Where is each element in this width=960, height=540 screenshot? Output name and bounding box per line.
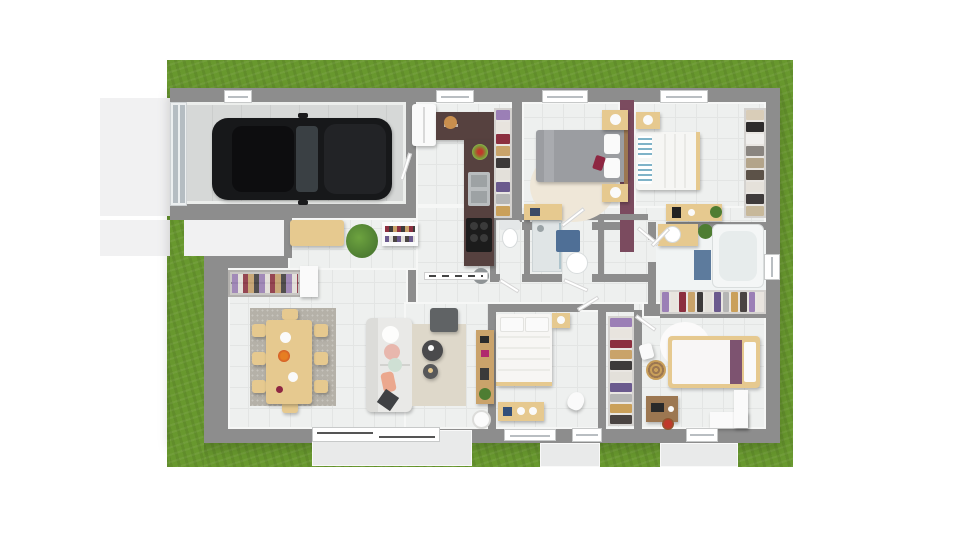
dining-chair-top bbox=[282, 309, 298, 320]
desk2-cup bbox=[688, 209, 695, 216]
bedroom3-laptop bbox=[651, 403, 664, 412]
kitchen-side-wardrobe bbox=[494, 108, 512, 218]
bed1-pillow-2 bbox=[604, 158, 620, 178]
burner-3 bbox=[470, 234, 478, 242]
clothes-item bbox=[610, 372, 632, 381]
desk4-radio bbox=[503, 407, 512, 416]
bed2-footboard bbox=[696, 132, 700, 190]
car-mirror-right bbox=[298, 200, 308, 205]
desk2-plant bbox=[710, 206, 722, 218]
nightstand2-cup bbox=[643, 115, 653, 125]
closet-cabinet bbox=[300, 266, 318, 297]
bathroom-window-line bbox=[771, 257, 773, 276]
coffee-cup bbox=[428, 345, 434, 351]
kitchen-sink bbox=[468, 172, 490, 206]
garage-sectional-door bbox=[170, 102, 187, 206]
bread-board bbox=[444, 116, 457, 129]
wall-shower-east bbox=[598, 218, 604, 276]
gray-ottoman bbox=[430, 308, 458, 332]
burner-4 bbox=[480, 234, 488, 242]
bedroom4-desk bbox=[498, 402, 544, 421]
shelf-unit bbox=[476, 330, 494, 404]
threshold-ticks bbox=[429, 275, 483, 277]
car-windshield bbox=[296, 126, 318, 192]
wall-kitchen-bedroom1 bbox=[512, 102, 522, 222]
car-hood bbox=[324, 124, 386, 194]
shoes-row bbox=[385, 226, 415, 232]
garage-door-panel-2 bbox=[180, 105, 185, 203]
kitchen-threshold bbox=[424, 272, 488, 280]
candle bbox=[428, 368, 433, 373]
shelf-item-dark bbox=[480, 336, 489, 343]
sink-basin-2 bbox=[471, 191, 487, 203]
wall-wcblock-south-b bbox=[522, 274, 562, 282]
clothes-item bbox=[746, 194, 764, 204]
bed4-duvet bbox=[498, 332, 550, 380]
bath-plant bbox=[698, 224, 713, 239]
bathroom-window bbox=[764, 254, 780, 280]
car-roof bbox=[232, 126, 294, 192]
bathtub-inner bbox=[719, 231, 757, 281]
clothes-item bbox=[731, 292, 738, 312]
desk4-jar-1 bbox=[517, 407, 525, 415]
burner-2 bbox=[480, 222, 488, 230]
wall-bedroom4-east bbox=[598, 304, 606, 429]
clothes-item bbox=[697, 292, 704, 312]
clothes-item bbox=[496, 170, 510, 180]
clothes-item bbox=[496, 146, 510, 156]
plate-2 bbox=[288, 372, 298, 382]
clothes-item bbox=[740, 292, 747, 312]
closet-clothes bbox=[232, 274, 298, 293]
clothes-item bbox=[714, 292, 721, 312]
cooktop bbox=[466, 218, 492, 252]
shelf-item-dark-2 bbox=[480, 368, 489, 380]
bedroom1-desk bbox=[524, 204, 562, 220]
entry-plant bbox=[346, 224, 378, 258]
car bbox=[212, 118, 392, 200]
shelf-plant bbox=[479, 388, 491, 400]
clothes-item bbox=[496, 110, 510, 120]
bedroom4-bed bbox=[496, 314, 552, 386]
clothes-item bbox=[610, 404, 632, 413]
desk1-laptop bbox=[530, 208, 540, 216]
clothes-item bbox=[610, 350, 632, 359]
wall-wcblock-south-c bbox=[592, 274, 650, 282]
clothes-item bbox=[746, 206, 764, 216]
clothes-item bbox=[496, 122, 510, 132]
wall-bedroom3-west bbox=[634, 310, 642, 429]
garage-side-door bbox=[224, 90, 252, 103]
clothes-item bbox=[662, 292, 669, 312]
bed3-purple-throw bbox=[730, 340, 742, 384]
bathtub bbox=[712, 224, 764, 288]
lamp-n bbox=[610, 114, 621, 125]
shoe-rack bbox=[382, 222, 418, 246]
bed4-pillow-1 bbox=[500, 317, 524, 332]
clothes-item bbox=[688, 292, 695, 312]
coffee-maker bbox=[672, 207, 681, 218]
clothes-item bbox=[496, 206, 510, 216]
sofa bbox=[366, 318, 412, 412]
garage-door-panel-1 bbox=[173, 105, 178, 203]
mug bbox=[276, 386, 283, 393]
bedroom3-desk-cup bbox=[668, 406, 674, 412]
sofa-pillow-white bbox=[382, 326, 399, 343]
bedroom1-nightstand-n bbox=[602, 110, 628, 130]
clothes-item bbox=[610, 340, 632, 349]
plate-1 bbox=[280, 332, 291, 343]
dining-chair-l3 bbox=[252, 380, 266, 393]
bed4-pillow-2 bbox=[525, 317, 549, 332]
bed3-mattress bbox=[672, 340, 734, 384]
wall-bedroom4-north bbox=[494, 304, 580, 312]
bed1-headboard bbox=[624, 128, 628, 184]
sofa-pillow-mint bbox=[388, 358, 402, 372]
clothes-item bbox=[746, 110, 764, 120]
clothes-item bbox=[746, 158, 764, 168]
dining-chair-l2 bbox=[252, 352, 266, 365]
kitchen-window bbox=[436, 90, 474, 103]
toilet-bowl bbox=[502, 228, 518, 248]
bed2-pillow-1 bbox=[638, 136, 652, 158]
front-door bbox=[572, 428, 602, 442]
clothes-item bbox=[496, 158, 510, 168]
bed2-duvet-folds bbox=[656, 134, 694, 188]
bedroom4-window bbox=[504, 429, 556, 441]
clothes-item bbox=[496, 182, 510, 192]
clothes-item bbox=[610, 394, 632, 403]
lamp-s bbox=[610, 187, 621, 198]
clothes-item bbox=[610, 329, 632, 338]
clothes-item bbox=[610, 318, 632, 327]
clothes-item bbox=[496, 134, 510, 144]
fridge-door-split bbox=[423, 107, 425, 143]
burner-1 bbox=[470, 222, 478, 230]
fridge bbox=[412, 104, 436, 146]
bed2-pillow-2 bbox=[638, 162, 652, 184]
bed1-fold bbox=[544, 130, 554, 182]
wall-wc-shower-divider bbox=[524, 218, 530, 276]
sink-basin-1 bbox=[471, 175, 487, 187]
sliding-bay-window bbox=[312, 427, 440, 442]
bedroom3-bed bbox=[668, 336, 760, 388]
dining-chair-r3 bbox=[314, 380, 328, 393]
shoes-row-2 bbox=[385, 236, 415, 242]
clothes-item bbox=[746, 182, 764, 192]
bedroom4-clock bbox=[557, 316, 565, 324]
beige-rug bbox=[412, 324, 466, 406]
dressing-wardrobe-row bbox=[660, 290, 766, 314]
driveway-notch bbox=[184, 220, 284, 256]
bed3-pillow bbox=[744, 342, 756, 382]
clothes-item bbox=[671, 292, 678, 312]
coffee-table-large bbox=[422, 340, 443, 361]
laundry-basket bbox=[646, 360, 666, 380]
bedroom2-window bbox=[660, 90, 708, 103]
sofa-backrest bbox=[366, 318, 378, 412]
driveway bbox=[100, 98, 170, 216]
bedroom4-nightstand bbox=[552, 313, 570, 328]
shower-room-basin bbox=[566, 252, 588, 274]
bed4-footboard bbox=[496, 382, 552, 386]
clothes-item bbox=[757, 292, 764, 312]
fruit-bowl bbox=[472, 144, 488, 160]
clothes-item bbox=[610, 415, 632, 424]
entry-bench bbox=[290, 220, 344, 246]
bedroom2-wardrobe bbox=[744, 108, 766, 218]
sofa-pillow-dark bbox=[377, 389, 399, 411]
car-mirror-left bbox=[298, 113, 308, 118]
bay-track-1 bbox=[317, 432, 373, 434]
lawn-west-band bbox=[170, 220, 204, 467]
dining-chair-l1 bbox=[252, 324, 266, 337]
shower-room-cabinet bbox=[556, 230, 580, 252]
blue-bath-mat bbox=[694, 250, 711, 280]
coat-closet bbox=[228, 270, 302, 297]
bedroom2-bed bbox=[636, 132, 700, 190]
food-bowl bbox=[278, 350, 290, 362]
red-flowers bbox=[662, 418, 674, 430]
bedroom1-window bbox=[542, 90, 588, 103]
clothes-item bbox=[723, 292, 730, 312]
clothes-item bbox=[746, 122, 764, 132]
dining-table bbox=[266, 320, 312, 404]
desk4-jar-2 bbox=[529, 407, 537, 415]
clothes-item bbox=[610, 361, 632, 370]
clothes-item bbox=[749, 292, 756, 312]
clothes-item bbox=[746, 170, 764, 180]
floor-plan-canvas bbox=[0, 0, 960, 540]
clothes-item bbox=[610, 383, 632, 392]
terrace-bedroom3 bbox=[660, 443, 738, 467]
hall-wardrobe-column bbox=[608, 316, 634, 426]
wall-bathroom-west-b bbox=[648, 262, 656, 310]
corner-bench-v bbox=[734, 390, 748, 428]
bedroom3-door bbox=[686, 428, 718, 442]
dining-chair-r2 bbox=[314, 352, 328, 365]
bedroom2-desk bbox=[666, 204, 722, 221]
bedroom1-bed bbox=[536, 130, 628, 182]
clothes-item bbox=[746, 146, 764, 156]
bay-track-2 bbox=[379, 436, 435, 438]
clothes-item bbox=[496, 194, 510, 204]
walkway-front-door bbox=[540, 443, 600, 467]
shower-head bbox=[537, 225, 544, 232]
clothes-item bbox=[746, 134, 764, 144]
bedroom1-nightstand-s bbox=[602, 184, 628, 202]
floor-lamp bbox=[472, 410, 491, 429]
bed1-pillow-1 bbox=[604, 134, 620, 154]
wall-bedroom1-south-b bbox=[592, 222, 620, 230]
dining-chair-r1 bbox=[314, 324, 328, 337]
shelf-item-magenta bbox=[481, 350, 489, 357]
bedroom2-nightstand bbox=[636, 112, 660, 129]
bedroom3-desk bbox=[646, 396, 678, 422]
clothes-item bbox=[679, 292, 686, 312]
clothes-item bbox=[705, 292, 712, 312]
coffee-table-small bbox=[423, 364, 438, 379]
